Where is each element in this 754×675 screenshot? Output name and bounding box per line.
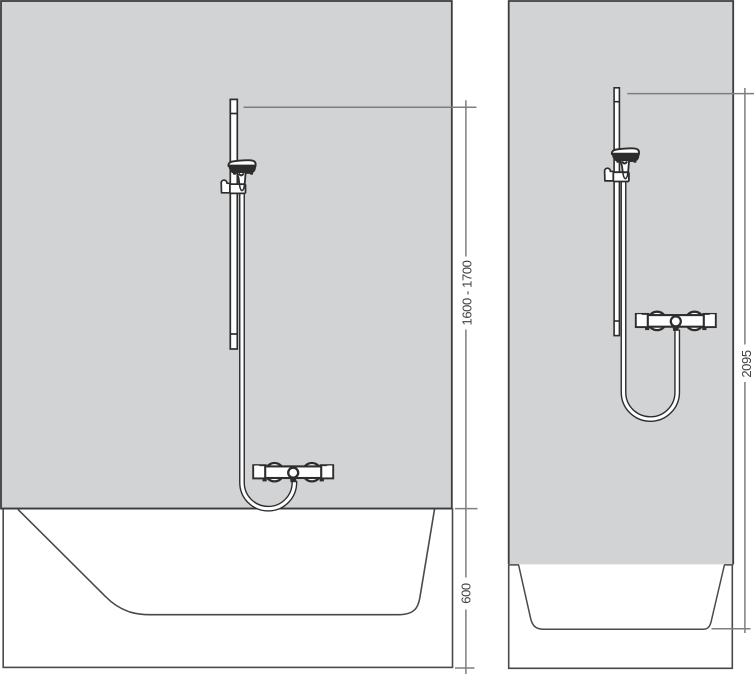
- svg-text:2095: 2095: [739, 350, 754, 377]
- svg-text:600: 600: [459, 583, 474, 604]
- svg-text:1600 - 1700: 1600 - 1700: [459, 260, 474, 325]
